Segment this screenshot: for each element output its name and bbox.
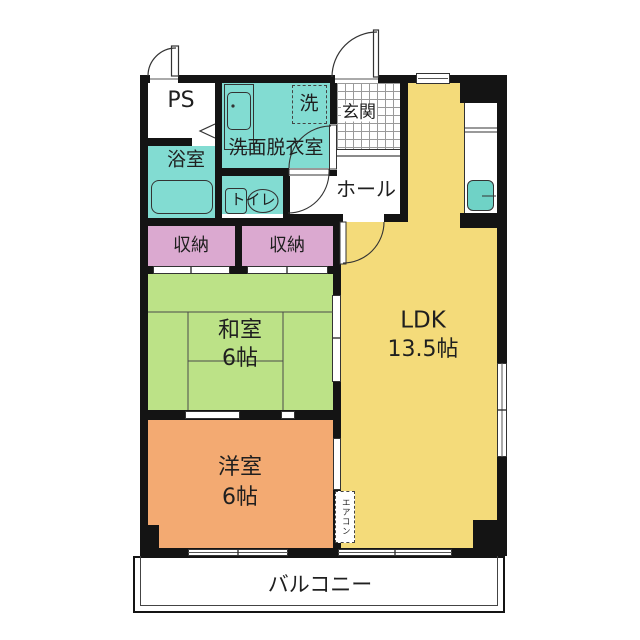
ps-label: PS (167, 90, 194, 112)
hall-label: ホール (336, 179, 396, 199)
hall-door-opening (343, 214, 384, 222)
western-room-label: 洋室 (218, 457, 262, 479)
wall-entrance-right (400, 83, 408, 222)
window-bottom-ldk (338, 549, 452, 556)
ps-door-opening (150, 75, 178, 83)
window-bottom-western (188, 549, 288, 556)
bathtub (151, 180, 213, 214)
closet-right-fusuma (247, 266, 328, 274)
japanese-western-slider-2 (281, 411, 295, 419)
ldk-size: 13.5帖 (388, 339, 459, 361)
japanese-western-slider-1 (185, 411, 240, 419)
japanese-room-size: 6帖 (222, 348, 258, 370)
washroom-door-opening (330, 124, 337, 170)
entrance-label: 玄関 (341, 105, 377, 122)
wall-counter-bottom (460, 213, 507, 228)
closet-left-label: 収納 (173, 237, 209, 255)
wall-japanese-western (148, 410, 341, 420)
vanity-basin (227, 92, 251, 130)
washer-label: 洗 (299, 95, 318, 114)
room-western (148, 420, 333, 548)
western-ldk-slider (333, 438, 341, 490)
wall-closet-top (148, 218, 341, 226)
closet-left-fusuma (153, 266, 230, 274)
ps-door-arc (148, 48, 176, 76)
balcony-label: バルコニー (268, 575, 373, 596)
entrance-door-leaf (374, 30, 379, 77)
wall-corner-topright (460, 75, 507, 103)
ps-door-leaf (172, 46, 179, 76)
japanese-ldk-slider (332, 295, 341, 382)
closet-right-label: 収納 (269, 237, 305, 255)
kitchen-sink (467, 180, 494, 211)
toilet-door-opening (289, 168, 329, 176)
wall-notch-bottomleft (148, 525, 159, 548)
floor-plan: PS 浴室 洗面脱衣室 洗 玄関 ホール トイレ 収納 収納 和室 6帖 LDK… (0, 0, 640, 640)
wall-corner-bottomright (473, 520, 507, 556)
entrance-door-opening (335, 75, 378, 83)
window-right (497, 363, 507, 457)
window-top (416, 73, 450, 84)
toilet-label: トイレ (230, 193, 275, 208)
western-room-size: 6帖 (222, 487, 258, 509)
ldk-label: LDK (400, 310, 446, 333)
entrance-door-arc (332, 32, 377, 77)
bathroom-label: 浴室 (167, 151, 205, 170)
washroom-label: 洗面脱衣室 (228, 139, 323, 158)
japanese-room-label: 和室 (218, 320, 262, 342)
wall-closet-divider (235, 226, 242, 266)
bathroom-door-opening (192, 138, 215, 146)
aircon-label: エアコン (341, 498, 350, 536)
wall-wet-divider (215, 83, 222, 218)
